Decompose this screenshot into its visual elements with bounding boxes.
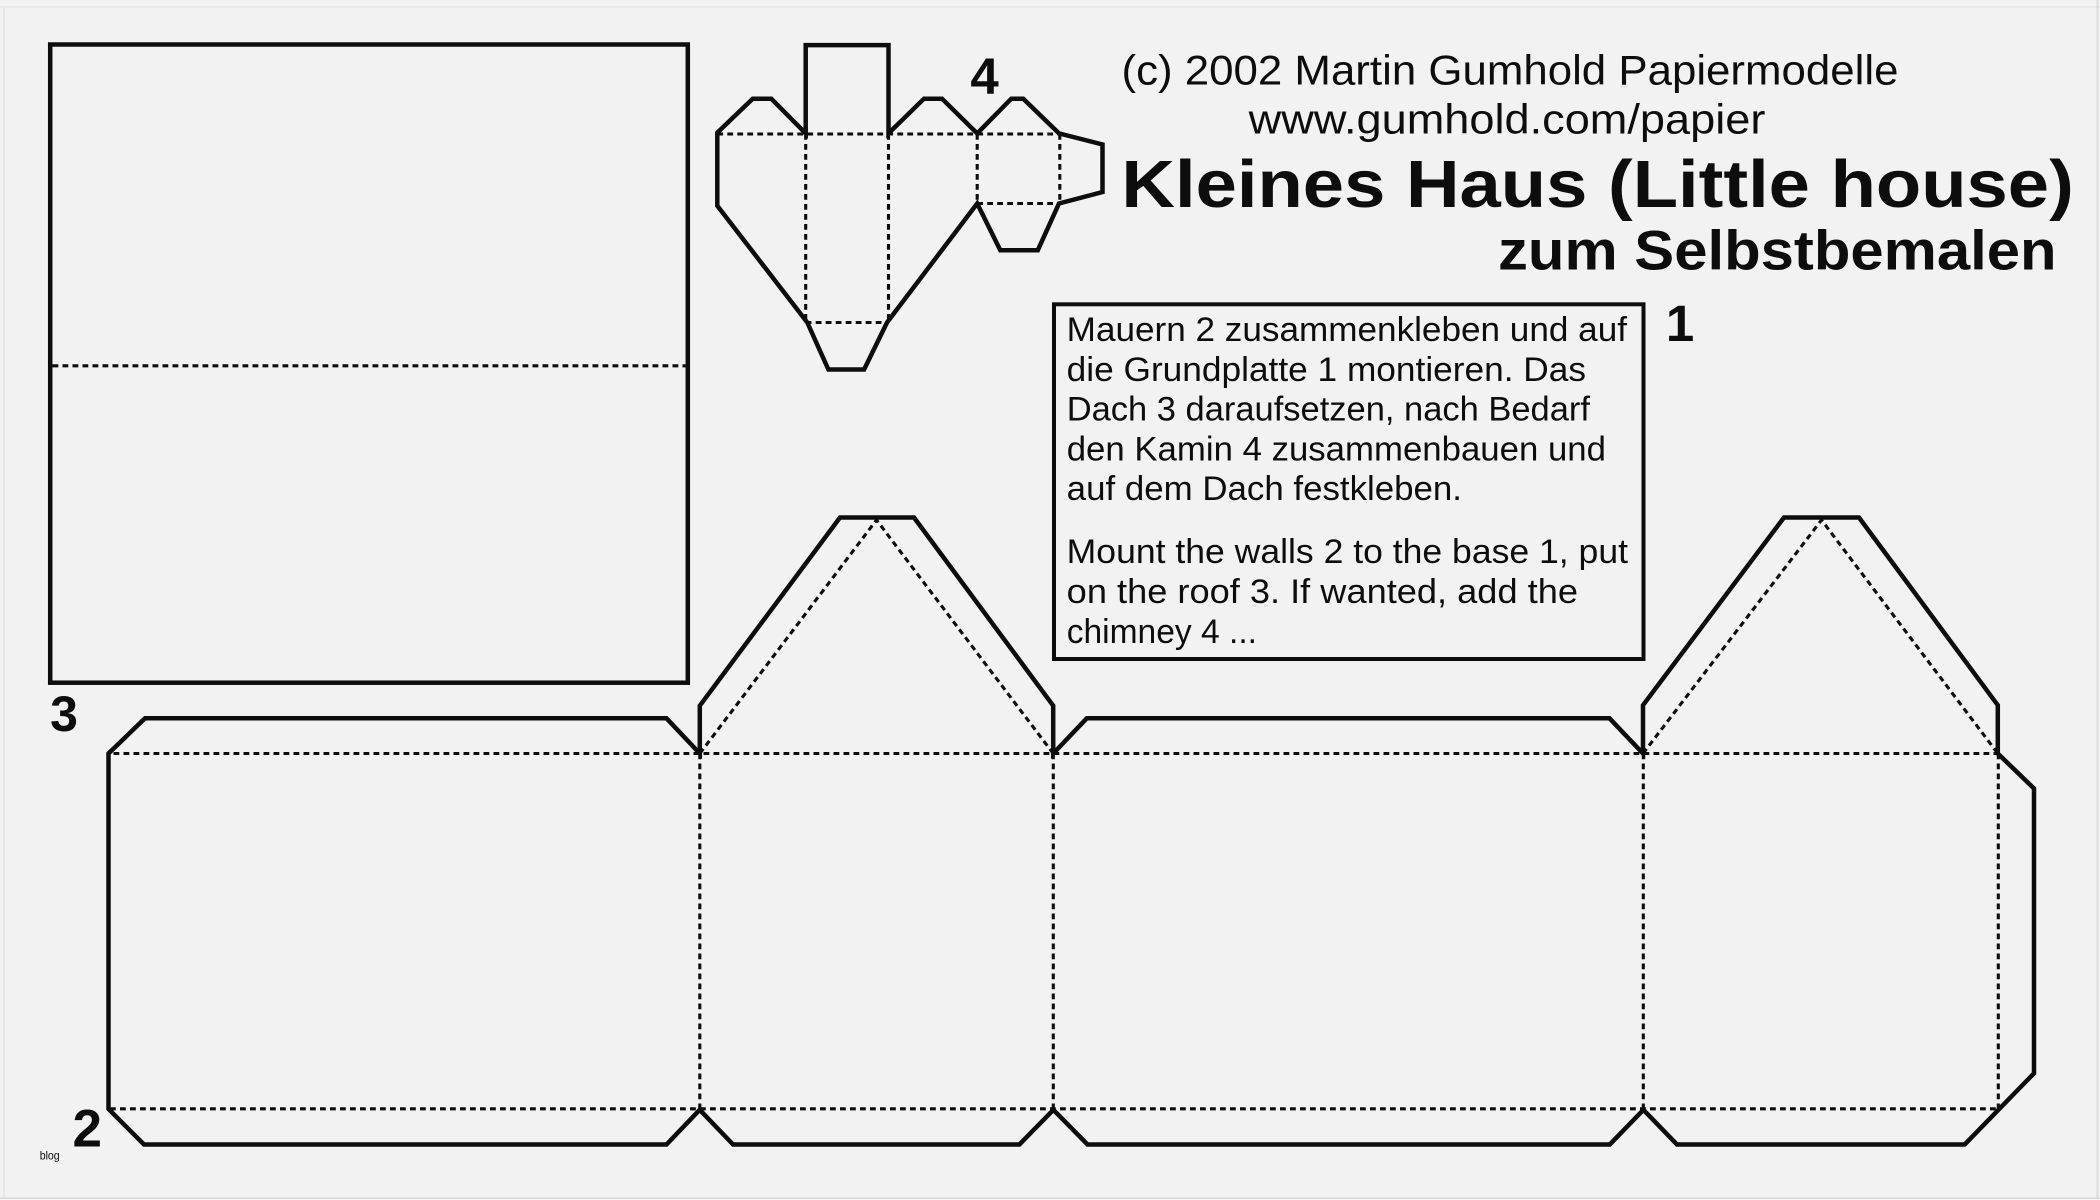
svg-text:on the roof 3. If wanted, add: on the roof 3. If wanted, add the: [1067, 573, 1578, 611]
svg-text:die Grundplatte 1 montieren. D: die Grundplatte 1 montieren. Das: [1067, 351, 1586, 389]
svg-text:auf dem Dach festkleben.: auf dem Dach festkleben.: [1067, 470, 1462, 508]
svg-text:Mauern 2 zusammenkleben und au: Mauern 2 zusammenkleben und auf: [1067, 311, 1628, 349]
svg-text:3: 3: [50, 686, 78, 742]
svg-text:Mount the walls 2 to the base: Mount the walls 2 to the base 1, put: [1067, 533, 1629, 571]
svg-text:Dach 3 daraufsetzen, nach Beda: Dach 3 daraufsetzen, nach Bedarf: [1067, 391, 1591, 429]
svg-text:4: 4: [970, 47, 999, 104]
svg-text:1: 1: [1666, 295, 1694, 352]
svg-text:www.gumhold.com/papier: www.gumhold.com/papier: [1248, 96, 1766, 143]
svg-text:zum Selbstbemalen: zum Selbstbemalen: [1498, 219, 2057, 282]
svg-text:den Kamin 4 zusammenbauen und: den Kamin 4 zusammenbauen und: [1067, 430, 1606, 468]
svg-text:Kleines Haus (Little house): Kleines Haus (Little house): [1121, 148, 2073, 222]
svg-text:chimney 4 ...: chimney 4 ...: [1067, 613, 1257, 651]
svg-text:2: 2: [72, 1100, 101, 1159]
svg-text:blog: blog: [40, 1149, 60, 1163]
svg-text:(c) 2002 Martin Gumhold Papier: (c) 2002 Martin Gumhold Papiermodelle: [1122, 46, 1899, 93]
